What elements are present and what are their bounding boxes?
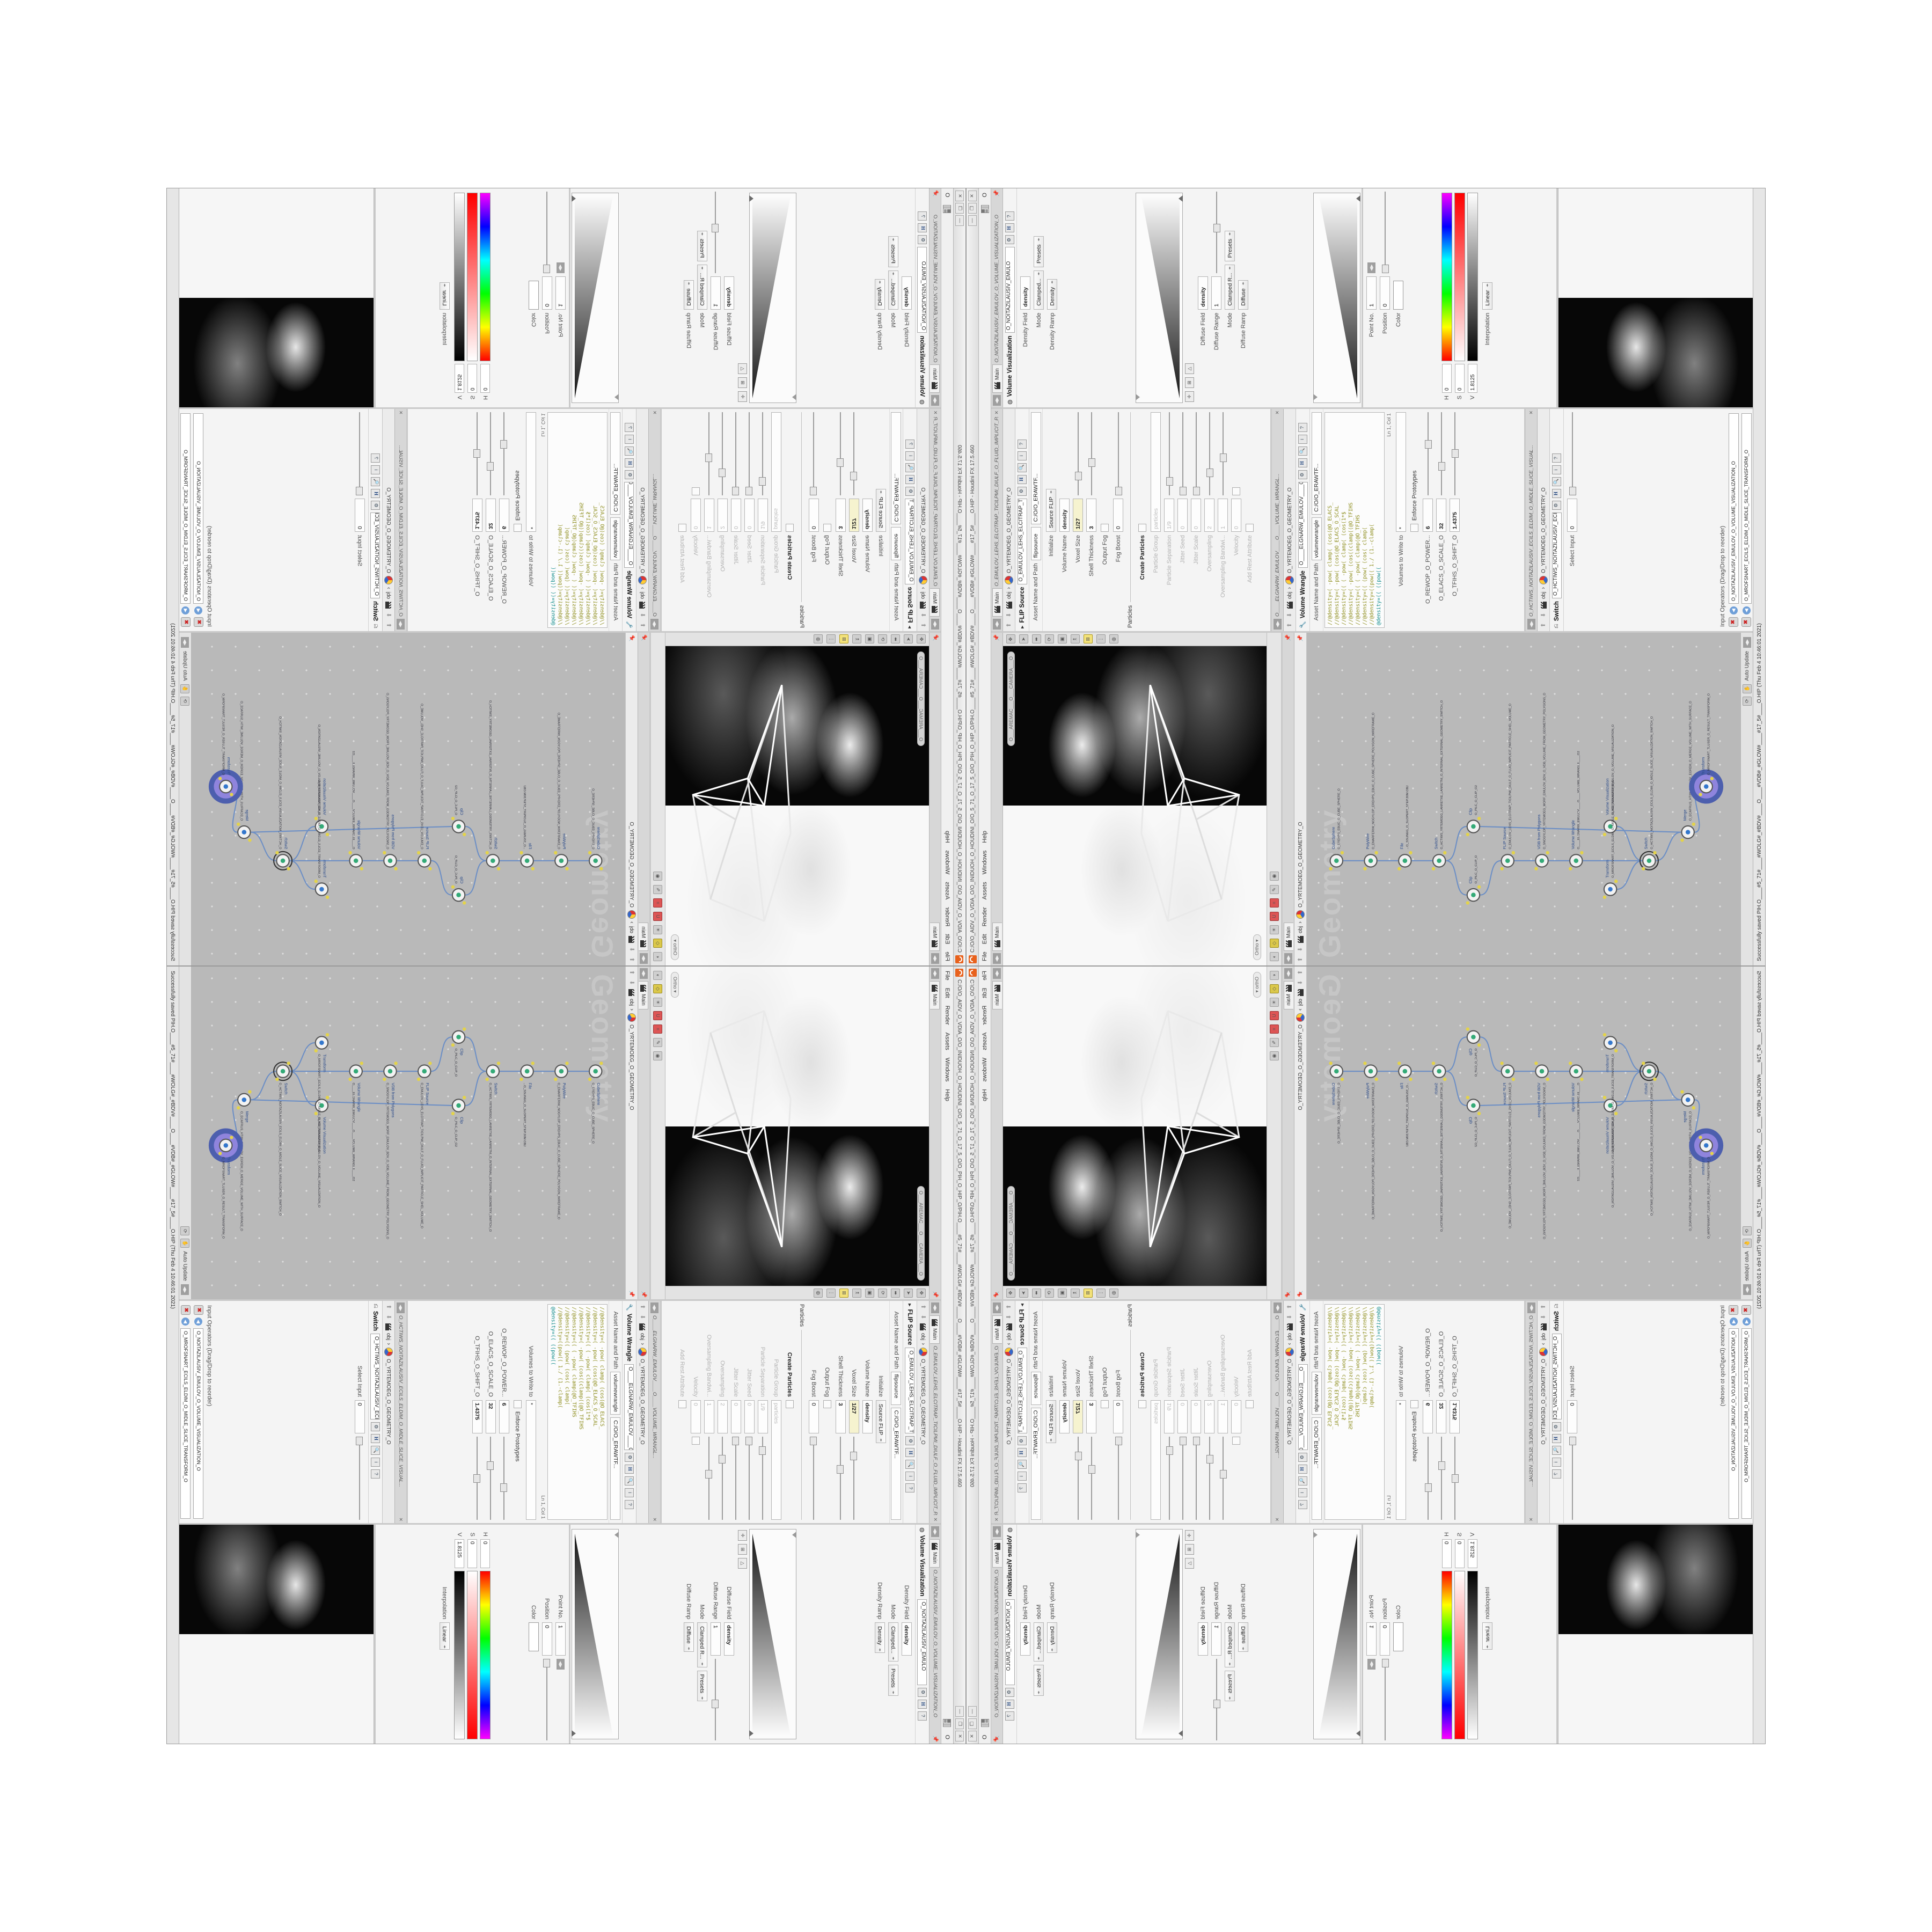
help-icon[interactable]: ? [1018,1483,1027,1492]
brush-icon[interactable]: ✋ [181,684,190,693]
search-icon[interactable]: 🔍 [371,1446,380,1455]
voxel-size-slider[interactable] [851,1437,858,1520]
diffuse-range-field[interactable]: 1 [711,1622,721,1656]
nav-back-icon[interactable]: ⬆ [385,621,392,629]
density-field[interactable]: density [902,1622,912,1656]
pane-split-handle[interactable]: ◀▶ [993,968,1001,979]
help-icon[interactable]: ? [918,211,927,221]
nav-forward-icon[interactable]: ⬇ [919,611,927,619]
close-button[interactable]: ✕ [968,1731,977,1741]
node-name-field[interactable]: O_HCTIWS_NOITAZILAUSIV_ECILS_EL [1552,1334,1562,1419]
shell-thickness-field[interactable]: 3 [836,1400,846,1433]
refresh-icon[interactable]: ⟳ [181,1226,190,1235]
pane-split-handle[interactable]: ◀▶ [993,953,1001,964]
flip-path-tab[interactable]: O_EMULOV_LEHS_ELCITRAP_TICILPMI_DIULF_O_… [994,417,1000,587]
add-point-icon[interactable]: ✛ [1185,391,1194,402]
title-bar[interactable]: C:/O/O_AIDV_O_VDIA_O/O_INIDUOH_O_HOUDINI… [967,188,979,965]
scale-tool-icon[interactable]: ▣ [865,635,874,644]
shade-icon[interactable]: ◐ [1270,971,1279,980]
nav-back-icon[interactable]: ⬆ [1286,621,1293,629]
pane-split-handle[interactable]: ◀▶ [993,395,1001,406]
jitter-seed-field[interactable]: 0 [744,1400,755,1433]
density-mode-dropdown[interactable]: Clamped... [888,270,898,310]
shift-field[interactable]: 1.4375 [1450,499,1460,532]
geometry-path[interactable]: O_YRTEMOEG_O_GEOMETRY_O [1541,487,1547,573]
pane-split-handle[interactable]: ◀▶ [181,1284,189,1295]
density-button[interactable]: Density [875,279,885,310]
close-tab-icon[interactable]: ✕ [1528,1517,1534,1521]
close-tab-icon[interactable]: ✕ [652,1517,657,1521]
geometry-path[interactable]: O_YRTEMOEG_O_GEOMETRY_O [640,1359,646,1445]
shell-thickness-slider[interactable] [1088,412,1095,495]
hue-field[interactable]: 0 [480,364,490,393]
close-tab-icon[interactable]: ✕ [1275,411,1280,415]
title-bar[interactable]: C:/O/O_AIDV_O_VDIA_O/O_INIDUOH_O_HOUDINI… [953,188,965,965]
density-ramp-widget[interactable] [1136,1529,1183,1739]
sat-field[interactable]: 0 [467,364,477,393]
interpolation-dropdown[interactable]: Linear [1482,1622,1492,1650]
input-operator-name[interactable]: O_NOITAZILAUSIV_EMULOV_O_VOLUME_VISUALIZ… [1729,413,1739,604]
help-icon[interactable]: ? [371,1469,380,1479]
brush-icon[interactable]: ✋ [181,1239,190,1248]
minimize-button[interactable]: — [955,1706,964,1717]
power-field[interactable]: 6 [1423,1400,1433,1433]
pane-tab-main[interactable]: Main [992,588,1002,617]
translate-tool-icon[interactable]: ⬌ [891,1289,900,1298]
close-tab-icon[interactable]: ✕ [932,411,938,415]
nav-back-icon[interactable]: ⬆ [385,1303,392,1311]
particle-group-field[interactable]: particles [771,1400,781,1520]
volumes-field[interactable]: * [526,1400,536,1520]
node-name-field[interactable]: O____ELGNARW_EMULOV____O [1298,482,1308,568]
oversampling-slider[interactable] [719,412,726,495]
point-spinner[interactable]: ◀▶ [557,1659,565,1670]
jitter-scale-slider[interactable] [1192,1437,1199,1520]
reorder-input-icon[interactable]: ◀ [1730,1318,1738,1326]
info-icon[interactable]: i [1018,451,1027,460]
sat-field[interactable]: 0 [1455,364,1465,393]
expand-arrow-icon[interactable]: ▸ [906,1304,913,1307]
lighting-icon[interactable]: ☀ [654,925,663,934]
node-name-field[interactable]: O_EMULOV_LEHS_ELCITRAP_TICI [905,499,915,584]
asset-path-field[interactable]: C:/O/O_ERAWTF... [1312,412,1322,515]
pane-split-handle[interactable]: ◀▶ [931,395,939,406]
geometry-path[interactable]: O_YRTEMOEG_O_GEOMETRY_O [386,1359,392,1445]
node-name-field[interactable]: O_NOITAZILAUSIV_EMULO [1005,1599,1015,1685]
select-input-slider[interactable] [356,412,363,495]
volume-name-field[interactable]: density [1059,1400,1070,1433]
density-button[interactable]: Density [1047,279,1057,310]
pane-split-handle[interactable]: ◀▶ [1274,619,1282,630]
pane-split-handle[interactable]: ◀▶ [993,619,1001,630]
help-icon[interactable]: ? [918,1711,927,1721]
interpolation-dropdown[interactable]: Linear [1482,282,1492,310]
volumes-field[interactable]: * [1396,412,1406,532]
close-button[interactable]: ✕ [955,191,964,201]
nav-back-icon[interactable]: ⬆ [639,621,646,629]
diffuse-range-field[interactable]: 1 [711,276,721,310]
pane-split-handle[interactable]: ◀▶ [1284,953,1292,964]
nav-forward-icon[interactable]: ⬇ [1005,1313,1013,1321]
value-bar[interactable] [1467,1571,1478,1739]
diffuse-range-slider[interactable] [712,192,719,273]
snap-magnet-icon[interactable]: U [654,912,663,921]
viewport-canvas[interactable]: O___AREMAC___O___CAMERA___O Ortho ▾ [665,646,929,965]
particles-section[interactable]: Particles [796,1304,807,1520]
diffuse-button[interactable]: Diffuse [1238,1622,1248,1652]
nav-forward-icon[interactable]: ⬇ [628,979,635,986]
cook-mode-label[interactable]: Auto Update [182,1251,188,1281]
pane-tab-main[interactable]: Main [992,1539,1002,1568]
add-rest-checkbox[interactable] [1246,1400,1254,1408]
add-point-icon[interactable]: ✛ [1185,1530,1194,1541]
search-icon[interactable]: 🔍 [1298,447,1307,456]
info-icon[interactable]: i [371,465,380,474]
nav-forward-icon[interactable]: ⬇ [385,1313,392,1321]
node-name-field[interactable]: O_NOITAZILAUSIV_EMULO [918,1599,927,1685]
secondary-viewport[interactable] [1558,188,1753,407]
pane-split-handle[interactable]: ◀▶ [640,953,648,964]
wrangle-path-tab[interactable]: O____ELGNARW_EMULOV____O____VOLUME_WRANG… [1275,417,1280,617]
pane-split-handle[interactable]: ◀▶ [1743,637,1751,648]
node-name-field[interactable]: O_HCTIWS_NOITAZILAUSIV_ECILS_EL [371,513,380,598]
node-name-field[interactable]: O____ELGNARW_EMULOV____O [625,1364,634,1450]
shift-field[interactable]: 1.4375 [472,499,482,532]
create-particles-checkbox[interactable] [1138,1400,1146,1408]
node-name-field[interactable]: O____ELGNARW_EMULOV____O [1298,1364,1308,1450]
particle-separation-slider[interactable] [1166,1437,1173,1520]
create-particles-checkbox[interactable] [786,1400,794,1408]
pane-tab-main[interactable]: Main [639,923,649,951]
asset-name-field[interactable]: flipsource [891,527,902,560]
snap-grid-icon[interactable]: ⌗ [1270,1024,1279,1034]
refresh-icon[interactable]: ⟳ [181,697,190,706]
density-ramp-widget[interactable] [1136,193,1183,403]
context-label[interactable]: obj [386,592,392,599]
pane-split-handle[interactable]: ◀▶ [993,1302,1001,1313]
particle-group-field[interactable]: particles [1151,1400,1161,1520]
search-icon[interactable]: 🔍 [1552,477,1561,486]
diffuse-mode-dropdown[interactable]: Clamped R... [1225,265,1235,309]
pane-split-handle[interactable]: ◀▶ [931,1302,939,1313]
select-input-field[interactable]: 0 [355,1400,365,1433]
close-tab-icon[interactable]: ✕ [994,411,1000,415]
voxel-size-field[interactable]: 1/27 [1073,499,1083,532]
hue-bar[interactable] [1441,193,1452,361]
desktop-grid-icon[interactable] [943,1719,952,1727]
viewport-canvas[interactable]: O___AREMAC___O___CAMERA___O Ortho ▾ [1003,646,1267,965]
gear-icon[interactable]: ⚙ [1552,1422,1561,1431]
menu-help[interactable]: Help [944,1089,950,1101]
menu-edit[interactable]: Edit [982,988,988,998]
point-spinner[interactable]: ◀▶ [557,262,565,273]
nav-back-icon[interactable]: ⬆ [628,956,635,963]
lighting-icon[interactable]: ☀ [1270,925,1279,934]
point-spinner[interactable]: ◀▶ [1367,262,1375,273]
shade-icon[interactable]: ◐ [1270,952,1279,961]
context-label[interactable]: obj [1006,1333,1012,1340]
shell-thickness-slider[interactable] [837,412,844,495]
flip-ramp-icon[interactable]: △ [1185,1558,1194,1569]
nav-back-icon[interactable]: ⬆ [1297,969,1304,976]
diffuse-ramp-widget[interactable] [572,193,619,403]
help-icon[interactable]: ? [1552,453,1561,463]
remove-input-icon[interactable]: ✖ [194,617,203,627]
color-swatch[interactable] [529,281,539,310]
viewport-canvas[interactable]: O___AREMAC___O___CAMERA___O Ortho ▾ [1003,967,1267,1286]
output-fog-checkbox[interactable] [1101,524,1109,532]
close-tab-icon[interactable]: ✕ [398,411,404,415]
color-swatch[interactable] [529,1622,539,1651]
node-graph[interactable]: CubeSphereO_EREHPS_EBUC_O_CUBE_SPHERE_OP… [1307,967,1740,1299]
scale-slider[interactable] [1438,412,1445,495]
particles-section[interactable]: Particles [1125,412,1136,628]
close-tab-icon[interactable]: ✕ [994,1517,1000,1521]
pane-tab-main[interactable]: Main [992,923,1002,951]
scale-slider[interactable] [487,412,494,495]
expand-arrow-icon[interactable]: ▸ [1019,625,1026,628]
gear-icon[interactable]: ⚙ [371,1422,380,1431]
diffuse-ramp-widget[interactable] [1313,193,1360,403]
reorder-input-icon[interactable]: ◀ [195,1318,203,1326]
scale-slider[interactable] [1438,1437,1445,1520]
context-label[interactable]: obj [1287,592,1293,599]
power-field[interactable]: 6 [1423,499,1433,532]
diffuse-presets-dropdown[interactable]: Presets [1225,1671,1235,1702]
camera-pill[interactable]: O___AREMAC___O___CAMERA___O [917,652,925,746]
turntable-icon[interactable]: ◉ [654,1051,663,1060]
add-rest-checkbox[interactable] [678,1400,686,1408]
lighting-icon[interactable]: ☀ [1270,998,1279,1007]
diffuse-presets-dropdown[interactable]: Presets [697,1671,707,1702]
gear-icon[interactable]: ⚙ [625,470,634,479]
position-slider[interactable] [1381,1659,1388,1740]
camera-pill[interactable]: O___AREMAC___O___CAMERA___O [1007,652,1015,746]
density-button[interactable]: Density [875,1622,885,1653]
geometry-path[interactable]: O_YRTEMOEG_O_GEOMETRY_O [629,822,635,908]
oversampling-field[interactable]: 2 [718,1400,728,1433]
node-name-field[interactable]: O_HCTIWS_NOITAZILAUSIV_ECILS_EL [1552,513,1562,598]
initialize-dropdown[interactable]: Source FLIP [876,1400,886,1443]
velocity-checkbox[interactable] [1232,1437,1240,1445]
position-field[interactable]: 0 [542,1622,552,1656]
diffuse-range-slider[interactable] [1213,192,1220,273]
val-field[interactable]: 1.8125 [455,364,464,393]
pane-split-handle[interactable]: ◀▶ [650,619,658,630]
secondary-viewport[interactable] [179,1525,374,1744]
info-icon[interactable]: i [905,1472,914,1481]
input-operator-name[interactable]: O_NOITAZILAUSIV_EMULOV_O_VOLUME_VISUALIZ… [194,1328,204,1519]
diffuse-range-field[interactable]: 1 [1211,1622,1221,1656]
sketch-icon[interactable]: ✎ [654,885,663,894]
pin-icon[interactable]: 📌 [1298,635,1304,641]
shell-thickness-slider[interactable] [1088,1437,1095,1520]
nav-back-icon[interactable]: ⬆ [628,969,635,976]
asset-path-field[interactable]: C:/O/O_ERAWTF... [1031,412,1041,524]
pose-tool-icon[interactable]: 🕱 [852,635,861,644]
display-volume-icon[interactable]: ◍ [814,635,823,644]
density-button[interactable]: Density [1047,1622,1057,1653]
flip-path-tab[interactable]: O_EMULOV_LEHS_ELCITRAP_TICILPMI_DIULF_O_… [994,1346,1000,1516]
pin-icon[interactable]: 📌 [1285,1291,1291,1298]
sketch-icon[interactable]: ✎ [654,1038,663,1047]
menu-render[interactable]: Render [944,907,950,926]
menu-render[interactable]: Render [944,1006,950,1025]
sat-field[interactable]: 0 [1455,1539,1465,1568]
node-name-field[interactable]: O_EMULOV_LEHS_ELCITRAP_TICI [1018,499,1027,584]
density-field[interactable]: density [902,276,912,310]
shift-slider[interactable] [474,1437,481,1520]
hue-field[interactable]: 0 [480,1539,490,1568]
remove-input-icon[interactable]: ✖ [181,1305,191,1315]
shift-field[interactable]: 1.4375 [472,1400,482,1433]
enforce-prototypes-checkbox[interactable] [1410,524,1418,532]
menu-render[interactable]: Render [982,907,988,926]
position-slider[interactable] [544,1659,551,1740]
shell-thickness-field[interactable]: 3 [1086,499,1096,532]
desktop-grid-icon[interactable] [981,1719,989,1727]
position-field[interactable]: 0 [542,276,552,310]
particle-separation-slider[interactable] [1166,412,1173,495]
nav-forward-icon[interactable]: ⬇ [639,1313,646,1321]
jitter-seed-field[interactable]: 0 [1177,1400,1188,1433]
geometry-path[interactable]: O_YRTEMOEG_O_GEOMETRY_O [629,1024,635,1110]
display-points-icon[interactable]: ⋮ [1096,635,1106,644]
diffuse-mode-dropdown[interactable]: Clamped R... [697,265,707,309]
jitter-seed-slider[interactable] [746,412,753,495]
oversampling-field[interactable]: 2 [1204,499,1214,532]
enforce-prototypes-checkbox[interactable] [514,1400,522,1408]
nav-back-icon[interactable]: ⬆ [1540,1303,1547,1311]
shift-slider[interactable] [1451,412,1458,495]
pane-split-handle[interactable]: ◀▶ [931,968,939,979]
gear-icon[interactable]: ⚙ [1005,1688,1014,1697]
jitter-scale-slider[interactable] [733,1437,740,1520]
diffuse-mode-dropdown[interactable]: Clamped R... [1225,1622,1235,1667]
pane-split-handle[interactable]: ◀▶ [931,619,939,630]
pane-tab-main[interactable]: Main [931,588,940,617]
wrangle-path-tab[interactable]: O____ELGNARW_EMULOV____O____VOLUME_WRANG… [652,1315,657,1515]
scale-field[interactable]: 32 [1436,499,1446,532]
view-tool-icon[interactable]: ✥ [1006,1289,1015,1298]
scale-field[interactable]: 32 [1436,1400,1446,1433]
turntable-icon[interactable]: ◉ [1270,872,1279,881]
position-field[interactable]: 0 [1380,276,1390,310]
search-icon[interactable]: 🔍 [1298,1476,1307,1485]
pane-split-handle[interactable]: ◀▶ [1274,1302,1282,1313]
flip-path-tab[interactable]: O_EMULOV_LEHS_ELCITRAP_TICILPMI_DIULF_O_… [932,417,938,587]
context-label[interactable]: obj [629,926,635,933]
hue-bar[interactable] [1441,1571,1452,1739]
scale-tool-icon[interactable]: ▣ [865,1289,874,1298]
menu-edit[interactable]: Edit [944,988,950,998]
diffuse-ramp-widget[interactable] [572,1529,619,1739]
expand-arrow-icon[interactable]: ▸ [906,625,913,628]
menu-edit[interactable]: Edit [944,934,950,944]
diffuse-field[interactable]: density [1198,276,1208,310]
voxel-size-field[interactable]: 1/27 [849,499,859,532]
shift-field[interactable]: 1.4375 [1450,1400,1460,1433]
remove-input-icon[interactable]: ✖ [194,1305,203,1315]
context-label[interactable]: obj [640,592,646,599]
maximize-button[interactable]: ❐ [955,203,964,214]
switch-path-tab[interactable]: O_HCTIWS_NOITAZILAUSIV_ECILS_ELDIM_O_MID… [1528,1315,1534,1515]
refresh-icon[interactable]: ⟳ [1743,1226,1752,1235]
refresh-icon[interactable]: ⟳ [1743,697,1752,706]
help-icon[interactable]: ? [1018,440,1027,449]
close-tab-icon[interactable]: ✕ [932,1517,938,1521]
info-icon[interactable]: i [905,451,914,460]
help-icon[interactable]: ? [905,1483,914,1492]
cook-mode-label[interactable]: Auto Update [1744,1251,1750,1281]
input-operator-name[interactable]: O_NOITAZILAUSIV_EMULOV_O_VOLUME_VISUALIZ… [1729,1328,1739,1519]
volume-name-field[interactable]: density [862,499,873,532]
snap-grid-icon[interactable]: ⌗ [1270,898,1279,908]
minimize-button[interactable]: — [968,215,977,226]
sat-field[interactable]: 0 [467,1539,477,1568]
position-field[interactable]: 0 [1380,1622,1390,1656]
nav-back-icon[interactable]: ⬆ [919,1303,927,1311]
hue-field[interactable]: 0 [1442,1539,1452,1568]
title-bar[interactable]: C:/O/O_AIDV_O_VDIA_O/O_INIDUOH_O_HOUDINI… [967,967,979,1744]
particle-group-field[interactable]: particles [1151,412,1161,532]
hue-bar[interactable] [480,193,491,361]
close-button[interactable]: ✕ [955,1731,964,1741]
close-tab-icon[interactable]: ✕ [652,411,657,415]
gear-icon[interactable]: ⚙ [1298,1453,1307,1462]
pane-split-handle[interactable]: ◀▶ [1527,1302,1535,1313]
turntable-icon[interactable]: ◉ [1270,1051,1279,1060]
input-operator-name[interactable]: O_MROFSNART_ECILS_ELDIM_O_MIDLE_SLICE_TR… [181,1328,191,1519]
initialize-dropdown[interactable]: Source FLIP [1046,1400,1056,1443]
desktop-grid-icon[interactable] [943,205,952,213]
geometry-path[interactable]: O_YRTEMOEG_O_GEOMETRY_O [1287,487,1293,573]
nav-forward-icon[interactable]: ⬇ [1540,1313,1547,1321]
remove-input-icon[interactable]: ✖ [1741,617,1751,627]
jitter-seed-field[interactable]: 0 [1177,499,1188,532]
asset-path-field[interactable]: C:/O/O_ERAWTF... [1031,1408,1041,1520]
geometry-path[interactable]: O_YRTEMOEG_O_GEOMETRY_O [1006,487,1012,573]
jitter-scale-field[interactable]: 0 [1191,499,1201,532]
jitter-scale-field[interactable]: 0 [731,1400,741,1433]
volume-name-field[interactable]: density [1059,499,1070,532]
gear-icon[interactable]: ⚙ [1005,235,1014,244]
remove-input-icon[interactable]: ✖ [181,617,191,627]
nav-forward-icon[interactable]: ⬇ [385,611,392,619]
context-label[interactable]: obj [1541,592,1547,599]
help-icon[interactable]: ? [1005,1711,1014,1721]
pane-tab-main[interactable]: Main [931,1539,940,1568]
layout-quad-icon[interactable]: ⊞ [839,1289,848,1298]
diffuse-field[interactable]: density [724,276,734,310]
reorder-input-icon[interactable]: ◀ [182,1318,190,1326]
nav-forward-icon[interactable]: ⬇ [919,1313,927,1321]
close-tab-icon[interactable]: ✕ [1528,411,1534,415]
wireframe-icon[interactable]: ◇ [654,939,663,948]
nav-back-icon[interactable]: ⬆ [1286,1303,1293,1311]
add-rest-checkbox[interactable] [678,524,686,532]
reorder-input-icon[interactable]: ◀ [1730,606,1738,614]
menu-file[interactable]: File [982,971,988,980]
menu-assets[interactable]: Assets [982,1033,988,1050]
maximize-button[interactable]: ❐ [968,203,977,214]
particle-separation-slider[interactable] [759,412,766,495]
node-name-field[interactable]: O_NOITAZILAUSIV_EMULO [1005,247,1015,333]
translate-tool-icon[interactable]: ⬌ [891,635,900,644]
context-label[interactable]: obj [920,592,926,599]
title-bar[interactable]: C:/O/O_AIDV_O_VDIA_O/O_INIDUOH_O_HOUDINI… [953,967,965,1744]
expand-arrow-icon[interactable]: ▸ [1019,1304,1026,1307]
